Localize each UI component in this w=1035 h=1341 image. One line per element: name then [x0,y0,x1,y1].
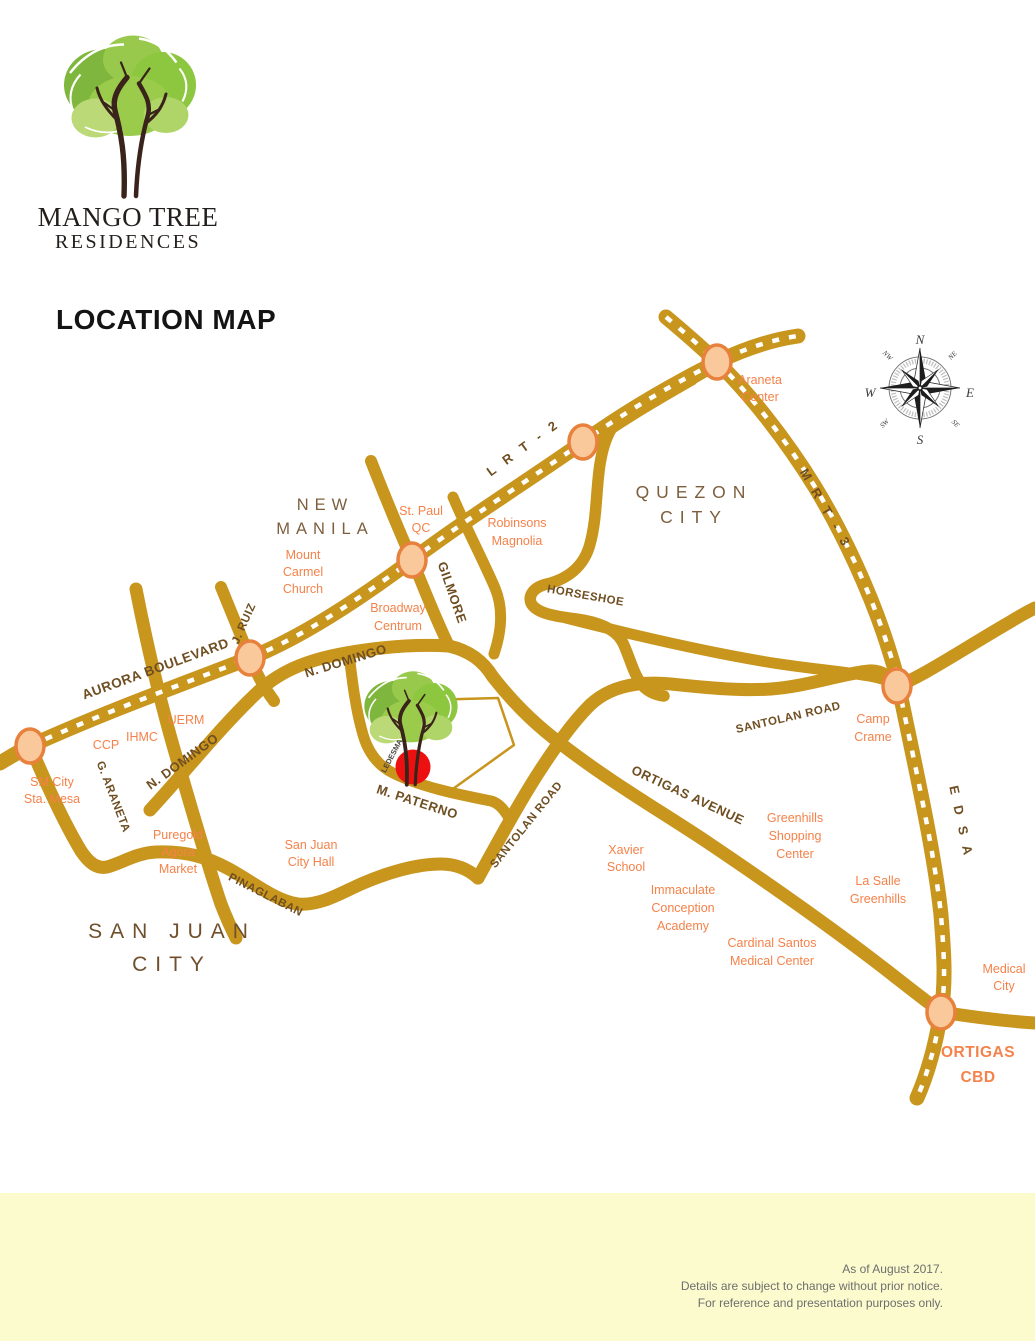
landmark-greenhills-shopping-center: Greenhills [767,811,823,825]
landmark-sm-city-sta-mesa: SM City [30,775,75,789]
road-label-horseshoe: HORSESHOE [546,583,625,608]
landmark-greenhills-shopping-center: Center [776,847,814,861]
footer-line-purpose: For reference and presentation purposes … [681,1295,943,1312]
transit-label-edsa: E D S A [946,784,976,860]
compass-label-east: E [965,385,974,400]
site-marker [396,750,431,785]
page-title: LOCATION MAP [56,304,276,336]
landmark-camp-crame: Crame [854,730,892,744]
road-label-ortigas-avenue: ORTIGAS AVENUE [629,762,746,827]
landmark-araneta-center: Center [741,390,779,404]
landmark-immaculate-conception-academy: Conception [651,901,714,915]
landmark-robinsons-magnolia: Robinsons [487,516,546,530]
logo-wordmark: MANGO TREE RESIDENCES [30,203,226,253]
compass-rose: N E S W NW NE SW SE [865,332,974,447]
compass-label-southwest: SW [878,417,891,430]
landmark-uerm: UERM [168,713,205,727]
road-network [0,317,1035,1098]
landmark-st-paul-qc: QC [412,521,431,535]
landmark-ortigas-cbd: CBD [960,1069,995,1086]
footer-line-notice: Details are subject to change without pr… [681,1278,943,1295]
road-label-pinaglaban: PINAGLABAN [226,871,304,919]
landmark-immaculate-conception-academy: Immaculate [651,883,716,897]
compass-label-north: N [915,332,926,347]
landmark-st-paul-qc: St. Paul [399,504,443,518]
area-label-quezon-city: CITY [660,507,728,527]
landmark-ortigas-cbd: ORTIGAS [941,1044,1015,1061]
station-node-ortigas [927,995,955,1029]
road-label-g-araneta: G. ARANETA [94,760,132,835]
compass-label-south: S [917,432,924,447]
road-santolan [478,608,1035,878]
landmark-mount-carmel-church: Mount [286,548,321,562]
station-node-gilmore [398,543,426,577]
road-bonny-serrano [566,618,897,686]
station-node-santolan [883,669,911,703]
landmark-greenhills-shopping-center: Shopping [769,829,822,843]
area-label-san-juan-city: CITY [132,953,212,976]
station-node-betty-go [569,425,597,459]
logo-brand-subtitle: RESIDENCES [30,231,226,253]
landmark-cardinal-santos-medical-center: Medical Center [730,954,814,968]
landmark-medical-city: Medical [982,962,1025,976]
area-label-new-manila: MANILA [276,520,373,538]
compass-label-southeast: SE [950,418,962,430]
landmark-la-salle-greenhills: La Salle [855,874,900,888]
compass-label-west: W [865,385,877,400]
landmark-robinsons-magnolia: Magnolia [492,534,543,548]
compass-label-northwest: NW [880,348,895,363]
compass-label-northeast: NE [946,349,959,362]
landmark-xavier-school: Xavier [608,843,643,857]
landmark-broadway-centrum: Centrum [374,619,422,633]
landmark-puregold-agora-market: Agora [161,845,194,859]
logo-brand-name: MANGO TREE [30,203,226,231]
landmark-sm-city-sta-mesa: Sta. Mesa [24,792,80,806]
landmark-puregold-agora-market: Puregold [153,828,203,842]
logo-tree-icon [64,36,196,197]
landmark-araneta-center: Araneta [738,373,782,387]
footer-disclaimer: As of August 2017. Details are subject t… [681,1261,943,1312]
transit-label-mrt3: M R T - 3 [797,466,855,552]
landmark-mount-carmel-church: Carmel [283,565,323,579]
landmark-medical-city: City [993,979,1015,993]
landmark-ccp: CCP [93,738,119,752]
road-label-santolan-road-east: SANTOLAN ROAD [735,700,842,736]
station-node-sta-mesa [16,729,44,763]
landmark-broadway-centrum: Broadway [370,601,426,615]
landmark-la-salle-greenhills: Greenhills [850,892,906,906]
station-node-araneta-center [703,345,731,379]
landmark-immaculate-conception-academy: Academy [657,919,710,933]
landmark-ihmc: IHMC [126,730,158,744]
landmark-puregold-agora-market: Market [159,862,198,876]
area-label-new-manila: NEW [297,496,354,514]
area-label-san-juan-city: SAN JUAN [88,920,256,943]
landmark-camp-crame: Camp [856,712,889,726]
location-map-page: N E S W NW NE SW SE NEW MANILA QUEZON CI… [0,0,1035,1341]
landmark-san-juan-city-hall: City Hall [288,855,335,869]
landmark-cardinal-santos-medical-center: Cardinal Santos [728,936,817,950]
footer-line-date: As of August 2017. [681,1261,943,1278]
landmark-san-juan-city-hall: San Juan [285,838,338,852]
compass-points [880,348,960,428]
area-label-quezon-city: QUEZON [636,482,753,502]
footer-band: As of August 2017. Details are subject t… [0,1193,1035,1341]
landmark-xavier-school: School [607,860,645,874]
landmark-mount-carmel-church: Church [283,582,323,596]
